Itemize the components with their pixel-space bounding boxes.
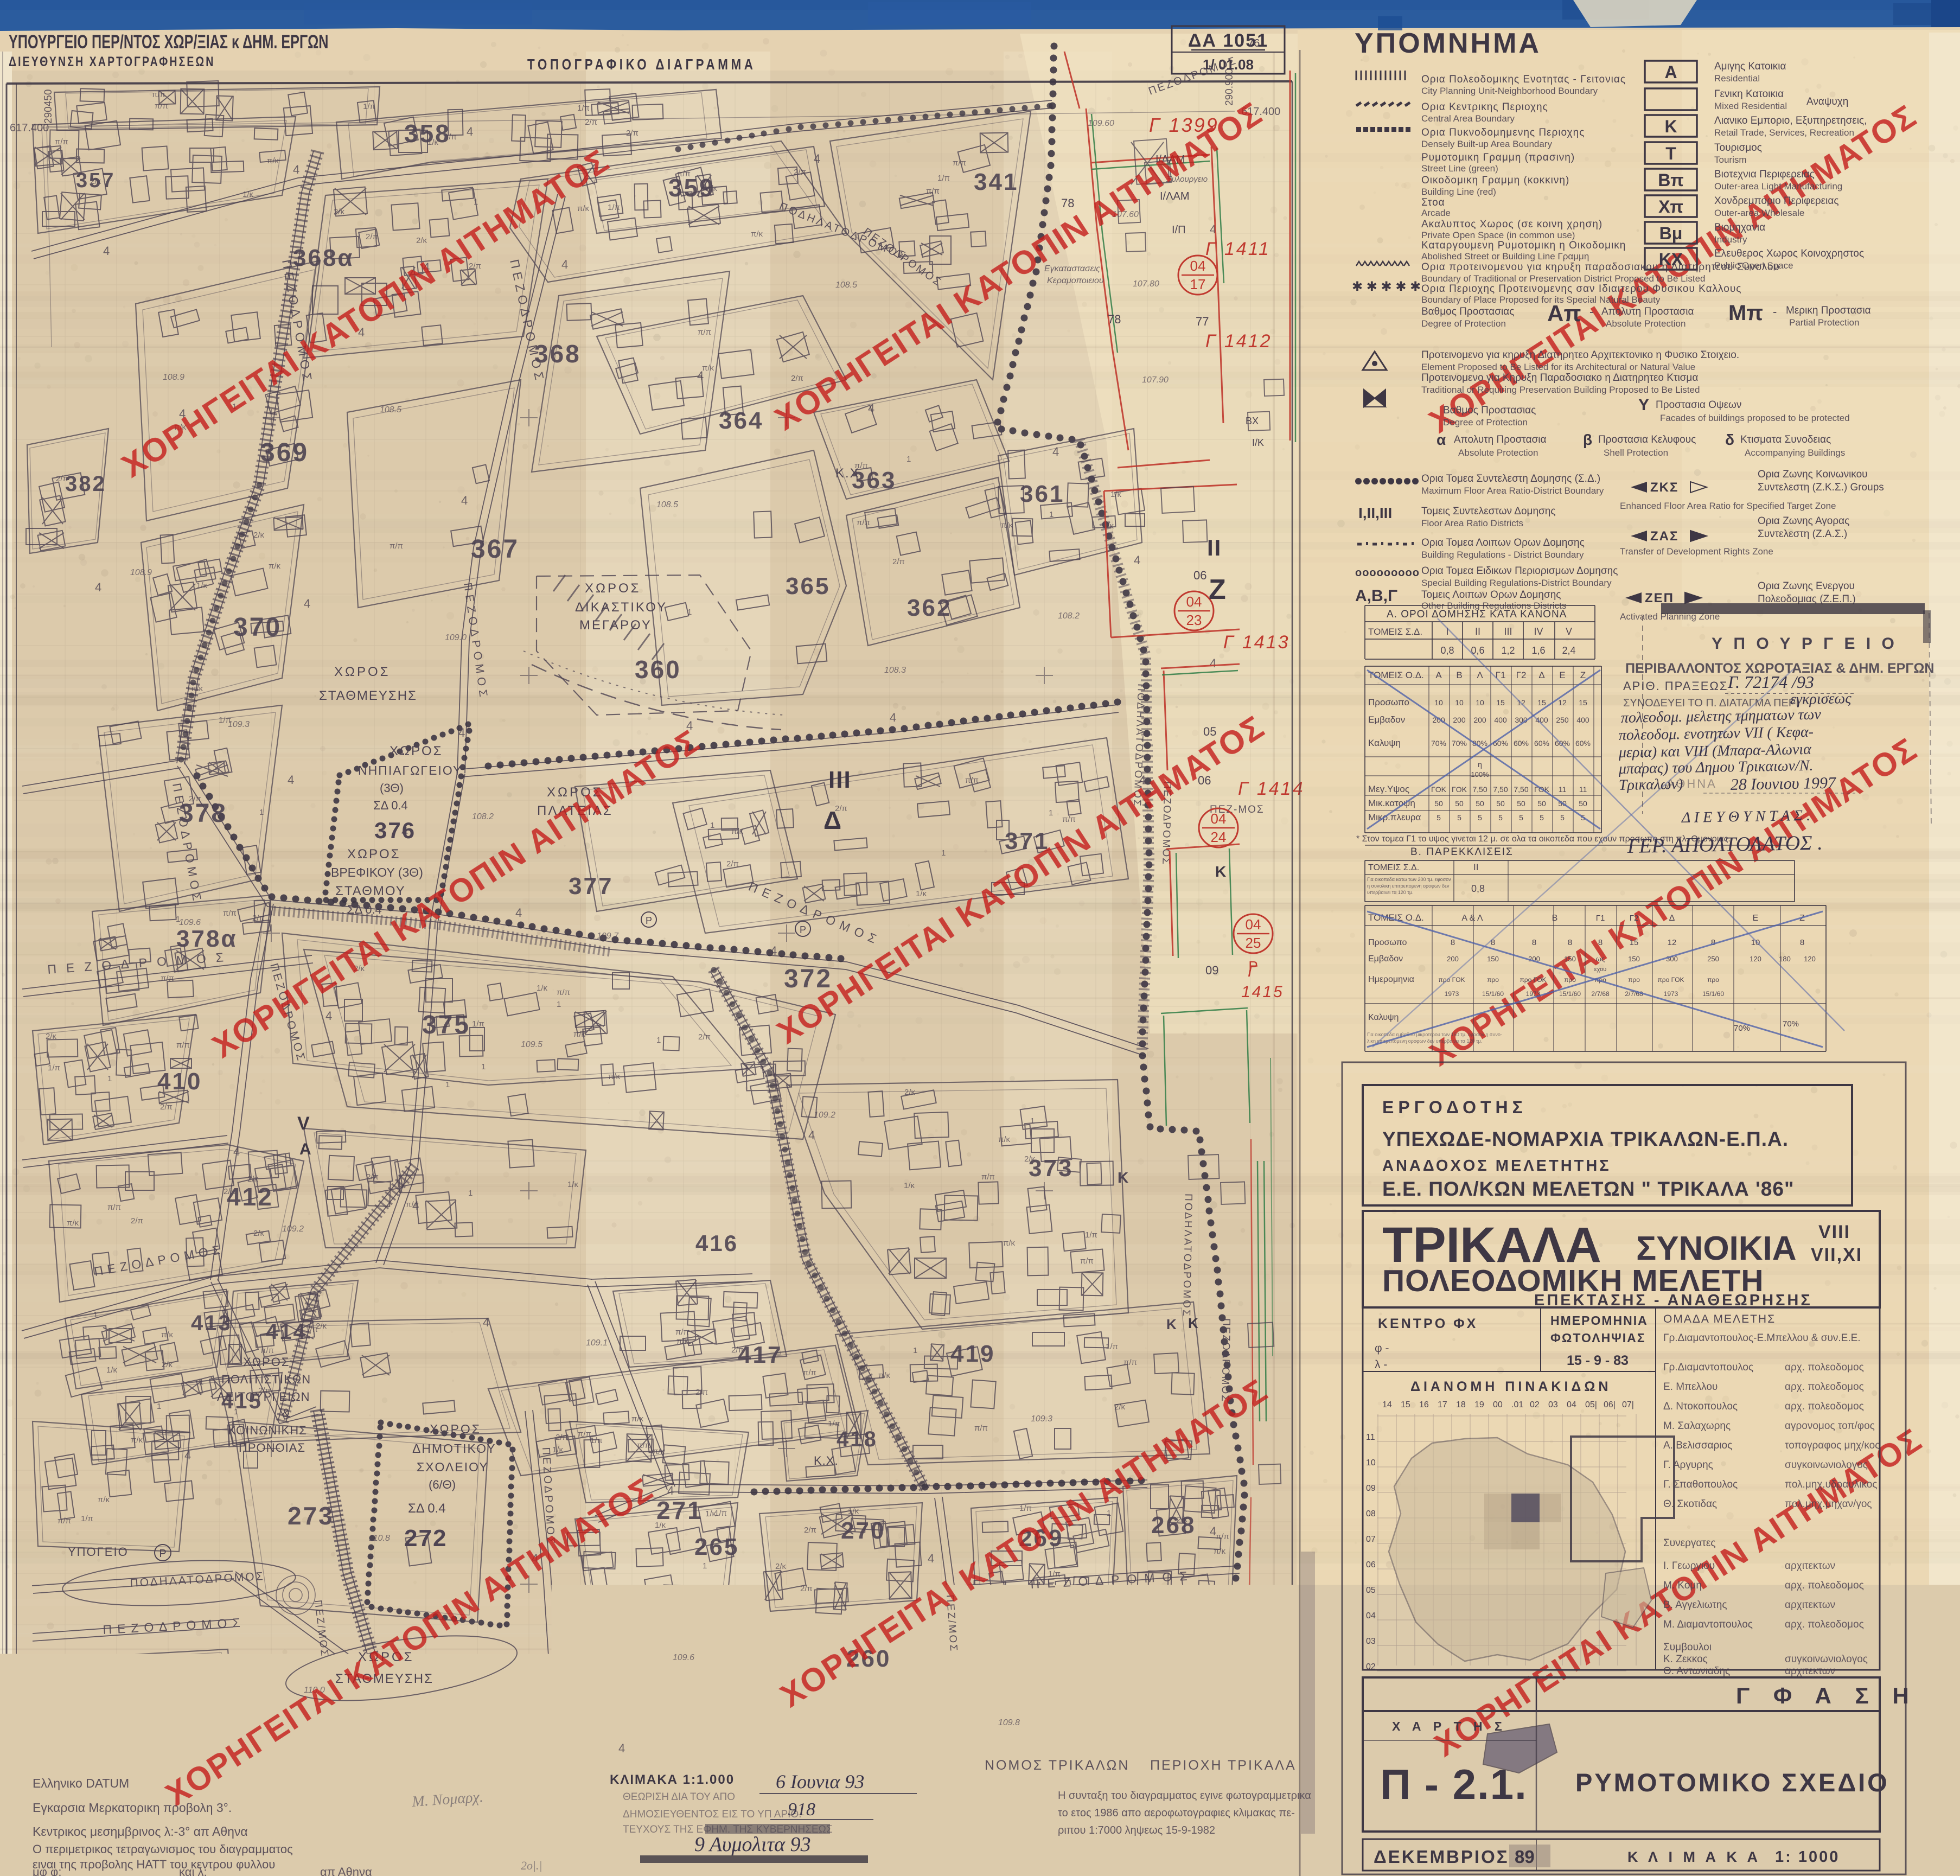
svg-text:109.7: 109.7 [597,931,619,941]
svg-text:4: 4 [928,1552,934,1565]
svg-text:Κτισματα Συνοδειας: Κτισματα Συνοδειας [1740,434,1831,445]
svg-text:06: 06 [1366,1560,1376,1569]
svg-text:1: 1 [1049,510,1054,519]
svg-text:VII,ΧΙ: VII,ΧΙ [1811,1245,1862,1265]
svg-text:4: 4 [618,1741,625,1755]
svg-text:Υ: Υ [1638,396,1649,414]
svg-text:4: 4 [1210,656,1216,670]
svg-text:Ορια Πυκνοδομημενης Περιοχης: Ορια Πυκνοδομημενης Περιοχης [1421,127,1585,138]
svg-text:5: 5 [1560,813,1565,822]
svg-text:π/κ: π/κ [1001,521,1013,530]
svg-text:και λ:: και λ: [179,1865,207,1876]
svg-text:υπερβαινει τα 120 τμ.: υπερβαινει τα 120 τμ. [1367,890,1414,895]
svg-text:ΙΙ: ΙΙ [1473,862,1478,872]
svg-text:απ Αθηνα: απ Αθηνα [320,1865,372,1876]
svg-text:08: 08 [1366,1509,1376,1518]
svg-text:Προστασια Οψεων: Προστασια Οψεων [1656,399,1741,411]
svg-text:ΣΤΑΘΜΟΥ: ΣΤΑΘΜΟΥ [335,884,406,898]
svg-text:π/π: π/π [677,169,691,178]
svg-text:ΧΩΡΟΣ: ΧΩΡΟΣ [430,1422,481,1436]
svg-text:ΤΟΜΕΙΣ Σ.Δ.: ΤΟΜΕΙΣ Σ.Δ. [1368,627,1422,637]
svg-text:109.8: 109.8 [998,1718,1020,1727]
svg-text:ΙΙ: ΙΙ [1475,626,1480,637]
svg-text:10: 10 [1366,1458,1376,1467]
svg-text:προ: προ [1487,976,1499,984]
svg-text:4: 4 [467,125,473,138]
svg-text:150: 150 [1628,955,1640,963]
svg-text:368α: 368α [293,245,354,271]
svg-text:Συντελεστη (Ζ.Α.Σ.): Συντελεστη (Ζ.Α.Σ.) [1758,528,1847,540]
svg-text:109.6: 109.6 [179,918,201,927]
svg-text:Element Proposed to Be Listed: Element Proposed to Be Listed for its Ar… [1421,362,1695,372]
svg-text:1/π: 1/π [1085,1230,1097,1240]
svg-text:δ: δ [1725,431,1734,448]
svg-text:Χπ: Χπ [1658,197,1683,216]
svg-text:2/κ: 2/κ [162,1360,173,1369]
svg-text:376: 376 [374,818,416,843]
svg-text:1/κ: 1/κ [705,1509,717,1518]
svg-text:Πολεοδομιας (Ζ.Ε.Π.): Πολεοδομιας (Ζ.Ε.Π.) [1758,594,1856,605]
svg-text:250: 250 [1556,716,1569,724]
svg-text:2/π: 2/π [804,1526,816,1535]
svg-text:αρχ. πολεοδομος: αρχ. πολεοδομος [1785,1362,1864,1373]
svg-text:70%: 70% [1452,739,1467,748]
svg-text:Για οικοπεδα κατω των 200 τμ.: Για οικοπεδα κατω των 200 τμ. εφοσον [1367,877,1451,882]
svg-text:50: 50 [1517,799,1525,808]
svg-text:Τομεις Συντελεστων Δομησης: Τομεις Συντελεστων Δομησης [1421,506,1556,517]
svg-text:φ -: φ - [1375,1342,1389,1355]
svg-text:2/7/68: 2/7/68 [1591,990,1610,998]
svg-text:Absolute Protection: Absolute Protection [1606,318,1686,329]
svg-text:οοοοοοοοο: οοοοοοοοο [1355,567,1420,579]
svg-text:ΚΕΝΤΡΟ ΦΧ: ΚΕΝΤΡΟ ΦΧ [1378,1316,1478,1331]
svg-text:Μπ: Μπ [1728,301,1763,325]
svg-text:Γ 1411: Γ 1411 [1205,239,1271,259]
svg-text:290450: 290450 [43,90,54,124]
svg-text:1/κ: 1/κ [242,190,254,199]
svg-text:ΖΕΠ: ΖΕΠ [1645,591,1674,605]
svg-text:π/π: π/π [55,137,68,146]
svg-text:ΤΟΜΕΙΣ Σ.Δ.: ΤΟΜΕΙΣ Σ.Δ. [1368,863,1419,872]
svg-text:15/1/60: 15/1/60 [1482,990,1504,998]
svg-text:Χονδρεμποριο Περιφερειας: Χονδρεμποριο Περιφερειας [1714,195,1838,207]
svg-text:4: 4 [770,944,777,958]
svg-text:382: 382 [65,472,106,496]
svg-text:109.3: 109.3 [228,720,250,729]
svg-text:Προσωπο: Προσωπο [1368,938,1407,947]
svg-text:341: 341 [974,169,1018,195]
svg-text:11: 11 [1559,785,1567,794]
svg-text:410: 410 [157,1068,202,1095]
svg-text:π/π: π/π [1216,1532,1229,1541]
svg-text:Κεραμοποιειου: Κεραμοποιειου [1047,276,1104,285]
svg-text:1/κ: 1/κ [106,1365,118,1375]
svg-text:μφ φ:: μφ φ: [33,1865,61,1876]
svg-text:10: 10 [1476,698,1484,707]
svg-text:04: 04 [1211,811,1227,827]
svg-text:V: V [297,1113,310,1134]
svg-text:ΙΙΙ: ΙΙΙ [828,767,852,793]
svg-text:200: 200 [1473,716,1486,724]
svg-text:4: 4 [401,825,408,838]
svg-text:14: 14 [1382,1400,1392,1409]
svg-text:ΧΩΡΟΣ: ΧΩΡΟΣ [585,581,641,596]
svg-text:π/κ: π/κ [191,684,203,693]
svg-text:π/κ: π/κ [676,1337,689,1346]
svg-text:αρχ. πολεοδομος: αρχ. πολεοδομος [1785,1381,1864,1393]
svg-text:π/π: π/π [176,1041,190,1050]
svg-text:ΔΕΚΕΜΒΡΙΟΣ: ΔΕΚΕΜΒΡΙΟΣ [1374,1847,1509,1867]
svg-text:1/π: 1/π [1106,1342,1118,1351]
svg-text:π/κ: π/κ [1003,1239,1016,1248]
svg-text:15/1/60: 15/1/60 [1702,990,1724,998]
svg-text:Ελληνικο DATUM: Ελληνικο DATUM [33,1776,129,1790]
svg-text:προ ΓΟΚ: προ ΓΟΚ [1657,976,1684,984]
svg-text:Βμ: Βμ [1659,224,1683,243]
svg-text:1: 1 [481,1062,486,1071]
svg-text:04: 04 [1190,258,1206,274]
svg-text:π/π: π/π [155,101,168,111]
svg-text:1/κ: 1/κ [552,1445,564,1454]
svg-text:Η συνταξη του διαγραμματος εγι: Η συνταξη του διαγραμματος εγινε φωτογρα… [1058,1790,1311,1802]
svg-text:Θ. Αντωνιαδης: Θ. Αντωνιαδης [1663,1666,1730,1677]
svg-text:εχου: εχου [1594,966,1607,973]
svg-text:2ο|.|: 2ο|.| [521,1859,542,1872]
svg-text:ΧΩΡΟΣ: ΧΩΡΟΣ [243,1355,290,1369]
svg-text:15: 15 [1496,698,1505,707]
svg-text:50: 50 [1455,799,1464,808]
svg-text:ΥΠΟΓΕΙΟ: ΥΠΟΓΕΙΟ [68,1545,129,1559]
svg-text:πολ.μηχ.υδραυλικος: πολ.μηχ.υδραυλικος [1785,1479,1877,1490]
svg-text:ΧΩΡΟΣ: ΧΩΡΟΣ [347,847,400,862]
svg-text:Ορια Ζωνης Κοινωνικου: Ορια Ζωνης Κοινωνικου [1758,469,1868,480]
svg-text:8: 8 [1532,938,1536,947]
svg-text:Λιανικο Εμποριο, Εξυπηρετησεις: Λιανικο Εμποριο, Εξυπηρετησεις, [1714,115,1867,126]
svg-text:616.800: 616.800 [1248,1698,1287,1709]
svg-text:1415: 1415 [1241,983,1284,1001]
svg-text:273: 273 [288,1502,334,1530]
svg-text:ΡΥΜΟΤΟΜΙΚΟ ΣΧΕΔΙΟ: ΡΥΜΟΤΟΜΙΚΟ ΣΧΕΔΙΟ [1575,1768,1889,1797]
svg-text:π/κ: π/κ [653,1447,665,1456]
svg-text:ΙΙΙ: ΙΙΙ [1504,626,1512,637]
svg-text:377: 377 [569,873,613,899]
svg-text:1/π: 1/π [363,102,375,111]
svg-text:Κ: Κ [1166,1316,1177,1332]
svg-text:ΚΛΙΜΑΚΑ 1:1.000: ΚΛΙΜΑΚΑ 1:1.000 [610,1772,735,1787]
svg-text:Transfer of Development Rights: Transfer of Development Rights Zone [1620,546,1773,557]
svg-text:5: 5 [1540,813,1544,822]
svg-text:π/κ: π/κ [1214,1547,1226,1556]
svg-text:1: 1 [199,1377,203,1387]
svg-text:78: 78 [1108,312,1121,326]
svg-text:06: 06 [1193,569,1206,582]
svg-text:89: 89 [1515,1847,1535,1867]
svg-text:Κ: Κ [1118,1169,1128,1186]
svg-text:4: 4 [412,1199,419,1213]
svg-text:09: 09 [1366,1484,1376,1493]
svg-text:π/π: π/π [926,187,940,196]
svg-text:7,50: 7,50 [1472,785,1487,794]
svg-text:ΔΗΜΟΣΙΕΥΘΕΝΤΟΣ ΕΙΣ ΤΟ ΥΠ ΑΡΙΘ.: ΔΗΜΟΣΙΕΥΘΕΝΤΟΣ ΕΙΣ ΤΟ ΥΠ ΑΡΙΘ. [623,1809,801,1820]
svg-text:Απολυτη Προστασια: Απολυτη Προστασια [1601,306,1694,317]
svg-text:7,50: 7,50 [1493,785,1508,794]
svg-text:π/π: π/π [58,1516,71,1526]
svg-text:Θ. Σκοτιδας: Θ. Σκοτιδας [1663,1498,1717,1510]
svg-text:αρχιτεκτων: αρχιτεκτων [1785,1666,1835,1677]
svg-text:&: & [282,1406,290,1420]
svg-text:λ -: λ - [1375,1358,1387,1371]
svg-text:π/π: π/π [953,158,966,168]
svg-text:Απολυτη Προστασια: Απολυτη Προστασια [1454,434,1546,445]
svg-text:Central Area Boundary: Central Area Boundary [1421,113,1515,124]
svg-text:Μεγ.Υψος: Μεγ.Υψος [1368,784,1409,794]
svg-text:4: 4 [458,726,465,739]
svg-text:2/κ: 2/κ [1017,1694,1028,1703]
svg-text:Ε: Ε [1753,914,1759,923]
svg-text:6 Ιουνια 93: 6 Ιουνια 93 [776,1771,864,1792]
svg-text:Retail Trade, Services, Recrea: Retail Trade, Services, Recreation [1714,127,1854,138]
svg-text:2/κ: 2/κ [253,1229,265,1238]
svg-text:150: 150 [1487,955,1499,963]
svg-text:π/π: π/π [965,776,979,785]
svg-text:αρχ. πολεοδομος: αρχ. πολεοδομος [1785,1619,1864,1630]
svg-text:4: 4 [103,244,110,258]
svg-text:4: 4 [1134,553,1140,567]
svg-text:προ: προ [1564,976,1576,984]
svg-text:4: 4 [890,711,896,724]
svg-text:Private Open Space (in common: Private Open Space (in common use) [1421,230,1575,240]
svg-text:προ ΓΟΚ: προ ΓΟΚ [1520,976,1546,984]
svg-text:Κ.Χ: Κ.Χ [835,466,860,481]
svg-text:Γ Φ Α Σ Η: Γ Φ Α Σ Η [1736,1683,1918,1708]
svg-text:ΜΕΓΑΡΟΥ: ΜΕΓΑΡΟΥ [579,618,652,633]
svg-text:416: 416 [695,1230,738,1256]
svg-text:Βαθμος Προστασιας: Βαθμος Προστασιας [1421,306,1514,317]
svg-text:ΓΟΚ: ΓΟΚ [1431,785,1447,794]
svg-text:109.3: 109.3 [1031,1414,1052,1424]
svg-text:918: 918 [788,1800,815,1820]
svg-text:1/κ: 1/κ [1103,521,1114,531]
svg-text:π/κ: π/κ [161,1330,174,1339]
svg-text:ΔΗΜΟΤΙΚΟΥ: ΔΗΜΟΤΙΚΟΥ [412,1441,496,1456]
svg-text:7,50: 7,50 [1514,785,1528,794]
svg-text:Προτεινομενο για κηρυξη Διατηρ: Προτεινομενο για κηρυξη Διατηρητεο Αρχιτ… [1421,349,1739,361]
svg-text:109.2: 109.2 [282,1224,304,1234]
svg-text:Shell Protection: Shell Protection [1604,448,1668,458]
svg-text:V: V [1566,626,1572,637]
svg-text:108.5: 108.5 [835,280,857,290]
svg-text:πολ.μηχ.μηχαν/γος: πολ.μηχ.μηχαν/γος [1785,1498,1872,1510]
svg-text:1/π: 1/π [48,1063,60,1073]
svg-text:Γ 1414: Γ 1414 [1238,779,1304,799]
svg-text:1: 1 [1030,1116,1035,1126]
svg-text:Β: Β [1552,914,1558,923]
svg-text:αρχιτεκτων: αρχιτεκτων [1785,1599,1835,1611]
svg-text:Ι/Κ: Ι/Κ [1252,437,1264,448]
svg-text:Ε.Ε. ΠΟΛ/ΚΩΝ ΜΕΛΕΤΩΝ " ΤΡΙΚΑΛ: Ε.Ε. ΠΟΛ/ΚΩΝ ΜΕΛΕΤΩΝ " ΤΡΙΚΑΛΑ '86" [1382,1178,1795,1200]
svg-text:ΣΥΝΟΙΚΙΑ: ΣΥΝΟΙΚΙΑ [1636,1230,1797,1267]
svg-text:ΙΙ: ΙΙ [1207,535,1222,560]
svg-text:Building Regulations - Distric: Building Regulations - District Boundary [1421,550,1584,560]
svg-text:Accompanying Buildings: Accompanying Buildings [1745,448,1845,458]
svg-text:120: 120 [1750,955,1761,963]
svg-text:05: 05 [1366,1586,1376,1595]
svg-text:π/κ: π/κ [631,1414,644,1424]
svg-text:Partial Protection: Partial Protection [1789,317,1859,328]
svg-text:8: 8 [1711,938,1715,947]
svg-text:109.1: 109.1 [586,1338,608,1348]
svg-text:Λ: Λ [1477,670,1483,680]
svg-text:π/κ: π/κ [98,1495,110,1504]
svg-text:15: 15 [1401,1400,1410,1409]
svg-text:ΥΠΕΧΩΔΕ-ΝΟΜΑΡΧΙΑ ΤΡΙΚΑΛΩΝ-Ε.Π.: ΥΠΕΧΩΔΕ-ΝΟΜΑΡΧΙΑ ΤΡΙΚΑΛΩΝ-Ε.Π.Α. [1382,1128,1789,1150]
svg-text:8: 8 [1800,938,1804,947]
svg-text:Δ: Δ [1538,670,1544,680]
svg-text:1973: 1973 [1445,990,1459,998]
svg-text:.01: .01 [1511,1400,1523,1409]
svg-text:ΝΟΜΟΣ ΤΡΙΚΑΛΩΝ: ΝΟΜΟΣ ΤΡΙΚΑΛΩΝ [985,1758,1129,1773]
svg-text:5: 5 [1437,813,1441,822]
svg-text:28 Ιουνιου 1997: 28 Ιουνιου 1997 [1731,774,1837,794]
svg-text:π/κ: π/κ [577,204,590,213]
svg-text:2/π: 2/π [556,1433,568,1442]
svg-text:1/π: 1/π [577,104,590,113]
svg-text:02: 02 [1530,1400,1540,1409]
svg-text:418: 418 [837,1427,878,1451]
svg-text:200: 200 [1453,716,1466,724]
svg-text:03: 03 [1366,1637,1376,1646]
svg-text:ΕΠΕΚΤΑΣΗΣ - ΑΝΑΘΕΩΡΗΣΗΣ: ΕΠΕΚΤΑΣΗΣ - ΑΝΑΘΕΩΡΗΣΗΣ [1534,1292,1812,1309]
svg-text:Γρ.Διαμαντοπουλος-Ε.Μπελλου &: Γρ.Διαμαντοπουλος-Ε.Μπελλου & συν.Ε.Ε. [1663,1332,1861,1344]
svg-text:362: 362 [907,595,952,621]
svg-text:Εμβαδον: Εμβαδον [1368,714,1405,725]
svg-text:24: 24 [1211,829,1227,845]
svg-text:π/π: π/π [223,909,237,918]
svg-text:09: 09 [1205,963,1218,977]
svg-text:2/κ: 2/κ [1038,1675,1049,1684]
svg-text:Ορια Ζωνης Ενεργου: Ορια Ζωνης Ενεργου [1758,580,1855,592]
svg-text:ΔΙΑΝΟΜΗ ΠΙΝΑΚΙΔΩΝ: ΔΙΑΝΟΜΗ ΠΙΝΑΚΙΔΩΝ [1410,1379,1611,1394]
svg-text:ΝΗΠΙΑΓΩΓΕΙΟΥ: ΝΗΠΙΑΓΩΓΕΙΟΥ [358,763,462,777]
svg-text:109.6: 109.6 [673,1653,694,1662]
svg-text:1/π: 1/π [692,1708,704,1717]
svg-text:2/κ: 2/κ [775,1562,787,1571]
svg-text:108.5: 108.5 [380,405,401,414]
svg-text:Α. ΟΡΟΙ ΔΟΜΗΣΗΣ ΚΑΤΑ ΚΑΝΟΝΑ: Α. ΟΡΟΙ ΔΟΜΗΣΗΣ ΚΑΤΑ ΚΑΝΟΝΑ [1387,609,1567,620]
svg-text:Βαθμος Προστασιας: Βαθμος Προστασιας [1443,405,1536,416]
svg-text:2/π: 2/π [585,118,597,127]
svg-text:Εμβαδον: Εμβαδον [1368,954,1403,963]
svg-text:4: 4 [515,906,522,920]
svg-text:419: 419 [950,1341,995,1367]
svg-text:60%: 60% [1493,739,1508,748]
svg-text:1: 1 [445,1080,450,1089]
svg-text:Ρυμοτομικη Γραμμη (πρασινη): Ρυμοτομικη Γραμμη (πρασινη) [1421,152,1575,163]
svg-text:πολεοδομ. ενοτητων VII ( Κεφα-: πολεοδομ. ενοτητων VII ( Κεφα- [1619,724,1814,744]
svg-text:1: 1 [941,848,946,858]
svg-text:1: 1 [259,808,264,817]
svg-text:π/π: π/π [857,518,870,527]
svg-text:ΠΡΟΝΟΙΑΣ: ΠΡΟΝΟΙΑΣ [239,1441,305,1454]
svg-text:Α: Α [299,1140,311,1158]
svg-text:π/π: π/π [578,1430,591,1439]
svg-text:Συνεργατες: Συνεργατες [1663,1537,1716,1549]
svg-text:ΖΑΣ: ΖΑΣ [1650,529,1678,544]
svg-text:εγκρισεως: εγκρισεως [1790,690,1852,708]
svg-text:364: 364 [719,407,763,434]
svg-text:50: 50 [1537,799,1546,808]
svg-text:Καλυψη: Καλυψη [1368,738,1401,748]
svg-text:06|: 06| [1604,1400,1616,1409]
svg-text:Στοα: Στοα [1421,197,1445,208]
svg-text:417: 417 [738,1342,782,1368]
svg-text:108.9: 108.9 [130,568,152,577]
svg-text:Καταργουμενη Ρυμοτομικη η Οικο: Καταργουμενη Ρυμοτομικη η Οικοδομικη [1421,240,1626,251]
svg-text:108.2: 108.2 [472,812,494,821]
svg-text:272: 272 [404,1525,447,1552]
svg-text:2/κ: 2/κ [1114,1402,1126,1412]
svg-text:Ακαλυπτος Χωρος (σε κοινη χρησ: Ακαλυπτος Χωρος (σε κοινη χρηση) [1421,219,1603,230]
svg-text:Μ. Κομη: Μ. Κομη [1663,1580,1702,1591]
svg-text:P: P [646,915,652,926]
svg-text:Κ Λ Ι Μ Α Κ Α: Κ Λ Ι Μ Α Κ Α [1627,1849,1761,1865]
svg-text:02: 02 [1366,1662,1376,1671]
svg-text:4: 4 [697,369,704,382]
svg-text:2/κ: 2/κ [334,207,345,216]
svg-text:10: 10 [1455,698,1464,707]
svg-text:Δ. Ντοκοπουλος: Δ. Ντοκοπουλος [1663,1401,1738,1412]
svg-text:2/π: 2/π [1071,1633,1084,1643]
svg-text:1,6: 1,6 [1531,645,1545,656]
svg-text:1: 1 [710,821,714,830]
svg-text:Α & Λ: Α & Λ [1461,914,1483,923]
svg-text:ΥΠΟΥΡΓΕΙΟ ΠΕΡ/ΝΤΟΣ ΧΩΡ/ΞΙΑΣ: ΥΠΟΥΡΓΕΙΟ ΠΕΡ/ΝΤΟΣ ΧΩΡ/ΞΙΑΣ κ ΔΗΜ. ΕΡΓΩΝ [9,31,328,53]
svg-text:Οικοδομικη Γραμμη (κοκκινη): Οικοδομικη Γραμμη (κοκκινη) [1421,175,1569,186]
svg-text:60%: 60% [1534,739,1549,748]
svg-text:ΓΕΡ. ΑΠΟΛΤΟΛΑΤΟΣ .: ΓΕΡ. ΑΠΟΛΤΟΛΑΤΟΣ . [1626,832,1823,858]
svg-text:Facades of buildings proposed: Facades of buildings proposed to be prot… [1660,413,1850,423]
svg-text:1: 1 [687,608,692,617]
svg-text:Κεντρικος μεσημβρινος λ:-3° α: Κεντρικος μεσημβρινος λ:-3° απ Αθηνα [33,1824,248,1839]
svg-text:Ορια Τομεα Λοιπων Ορων Δομηση: Ορια Τομεα Λοιπων Ορων Δομησης [1421,537,1585,548]
svg-text:1/κ: 1/κ [848,1507,859,1516]
svg-text:Enhanced Floor Area Ratio for: Enhanced Floor Area Ratio for Specified … [1620,501,1836,511]
svg-text:π/π: π/π [161,974,174,983]
svg-text:23: 23 [1186,612,1202,628]
svg-text:2/π: 2/π [366,232,378,241]
svg-text:συγκοινωνιολογος: συγκοινωνιολογος [1785,1654,1868,1665]
svg-text:Μ. Διαμαντοπουλος: Μ. Διαμαντοπουλος [1663,1619,1753,1630]
svg-text:2/κ: 2/κ [46,1032,57,1041]
svg-text:Εγκαρσια Μερκατορικη προβολη 3: Εγκαρσια Μερκατορικη προβολη 3°. [33,1801,232,1815]
svg-text:π/κ: π/κ [878,1371,891,1380]
svg-text:Γ. 72174 /93: Γ. 72174 /93 [1727,672,1814,692]
svg-text:ριπου 1:7000 ληψεως 15-9-1982: ριπου 1:7000 ληψεως 15-9-1982 [1058,1824,1215,1836]
svg-text:1/π: 1/π [1071,1668,1083,1677]
svg-text:1/π: 1/π [937,174,950,183]
svg-text:357: 357 [76,169,115,192]
svg-text:109.5: 109.5 [521,1040,542,1049]
svg-text:προ ΓΟΚ: προ ΓΟΚ [1438,976,1465,984]
svg-text:367: 367 [471,535,519,564]
svg-text:π/π: π/π [145,1709,159,1718]
svg-text:Outer-area Light Manufacturing: Outer-area Light Manufacturing [1714,181,1842,192]
svg-text:50: 50 [1434,799,1443,808]
svg-text:Κ: Κ [1664,117,1677,136]
svg-text:ΚΧ: ΚΧ [1659,250,1683,269]
svg-text:Προσωπο: Προσωπο [1368,697,1409,707]
svg-text:ΙV: ΙV [1534,626,1543,637]
